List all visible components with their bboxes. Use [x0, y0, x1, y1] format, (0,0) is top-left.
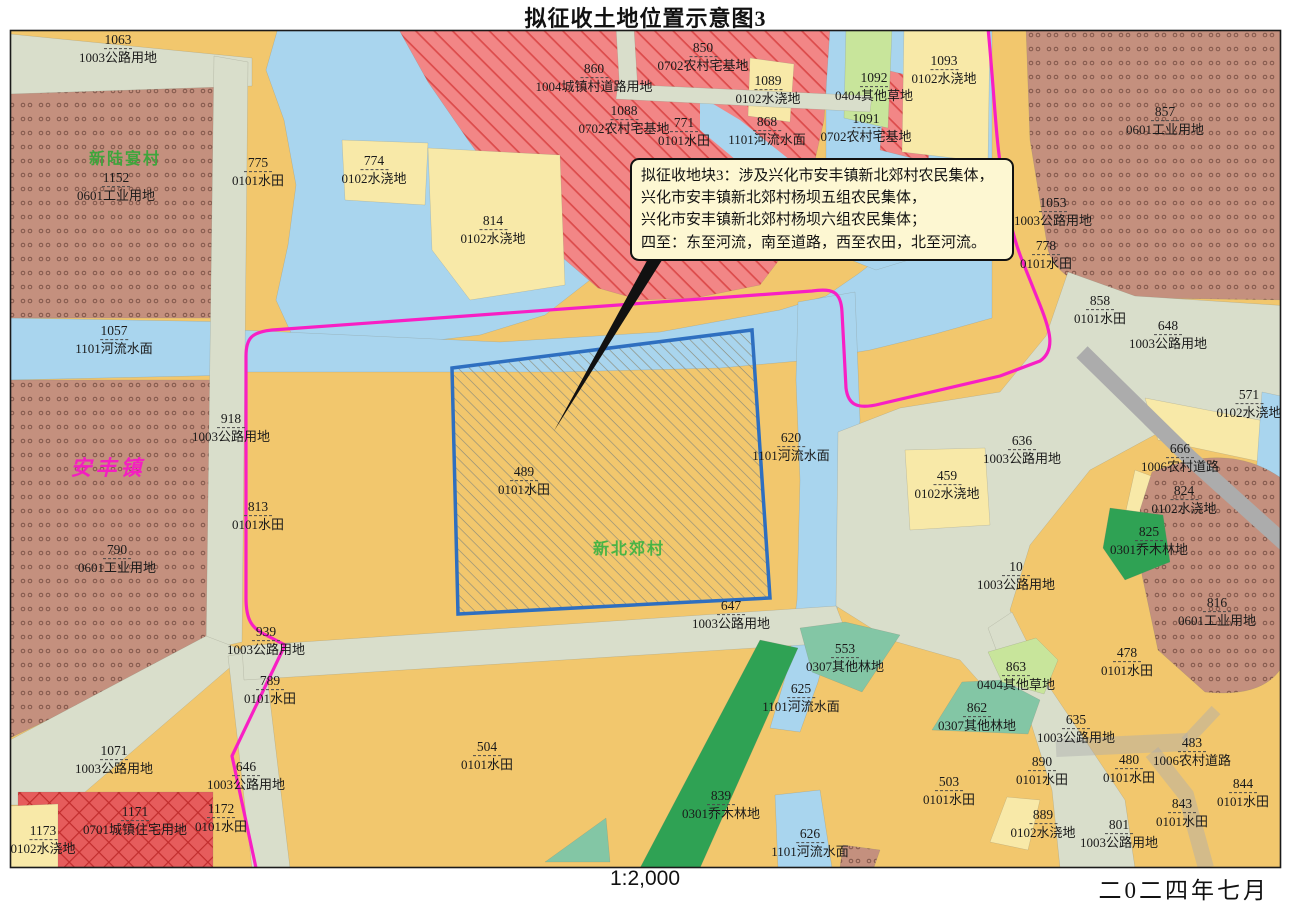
map-canvas: 拟征收土地位置示意图3	[0, 0, 1291, 903]
page-title: 拟征收土地位置示意图3	[0, 1, 1291, 33]
map-scale: 1:2,000	[555, 867, 735, 891]
callout-line: 兴化市安丰镇新北郊村杨坝六组农民集体；	[641, 209, 1003, 231]
region-rural-road-483	[1056, 742, 1188, 748]
region-industrial-topleft	[10, 56, 231, 318]
callout-line: 四至：东至河流，南至道路，西至农田，北至河流。	[641, 232, 1003, 254]
land-use-map	[0, 0, 1291, 903]
expropriation-parcel-boundary	[452, 330, 770, 614]
callout-line: 拟征收地块3：涉及兴化市安丰镇新北郊村农民集体，	[641, 165, 1003, 187]
region-irrigated-1173	[10, 804, 58, 867]
expropriation-callout-box: 拟征收地块3：涉及兴化市安丰镇新北郊村农民集体， 兴化市安丰镇新北郊村杨坝五组农…	[630, 158, 1014, 261]
region-irrigated-1093	[902, 28, 990, 162]
region-irrigated-1089	[748, 58, 794, 122]
region-industrial-topright	[1026, 28, 1290, 300]
region-irrigated-774	[342, 140, 428, 205]
region-water-left-river	[10, 318, 240, 380]
region-grass-1092	[844, 28, 892, 128]
region-irrigated-459	[905, 448, 990, 530]
map-date: 二0二四年七月	[1099, 871, 1270, 905]
callout-line: 兴化市安丰镇新北郊村杨坝五组农民集体，	[641, 187, 1003, 209]
